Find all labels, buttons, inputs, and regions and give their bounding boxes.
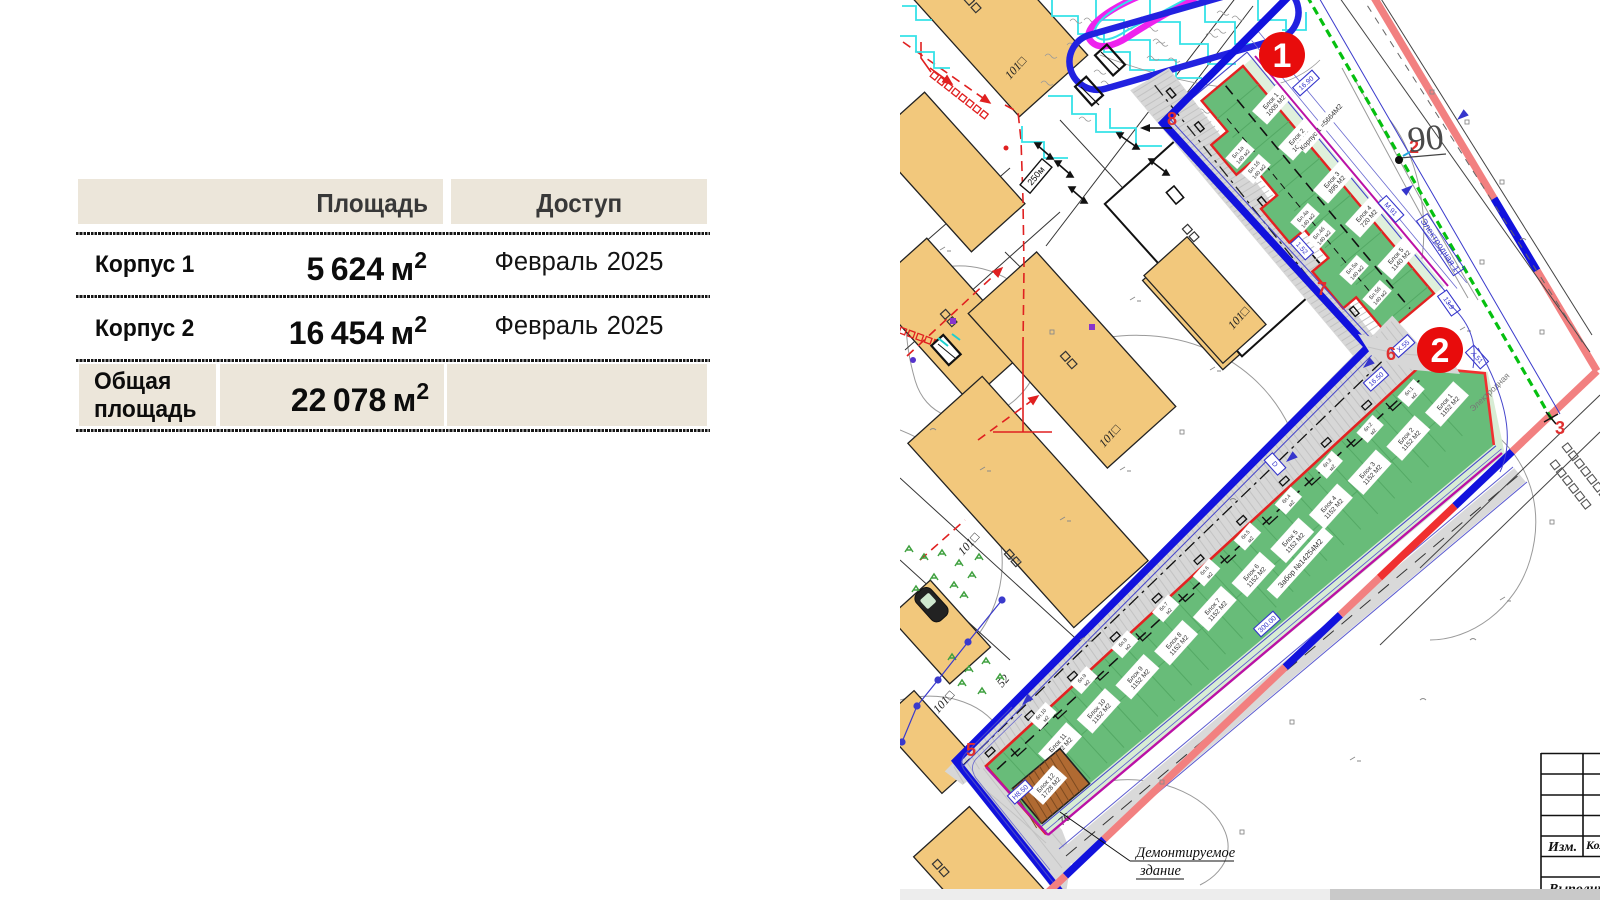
svg-text:3: 3 [1555,418,1565,438]
svg-text:8: 8 [1167,109,1177,129]
svg-text:1: 1 [1273,37,1292,75]
svg-text:7: 7 [1317,279,1327,299]
svg-text:Демонтируемое: Демонтируемое [1134,845,1236,861]
svg-text:90: 90 [1406,116,1446,160]
svg-text:Кол: Кол [1585,838,1600,852]
svg-text:6: 6 [1386,344,1396,364]
svg-text:5: 5 [966,740,976,760]
svg-text:здание: здание [1139,863,1181,879]
svg-text:2: 2 [1431,332,1450,370]
svg-text:Изм.: Изм. [1547,840,1577,855]
